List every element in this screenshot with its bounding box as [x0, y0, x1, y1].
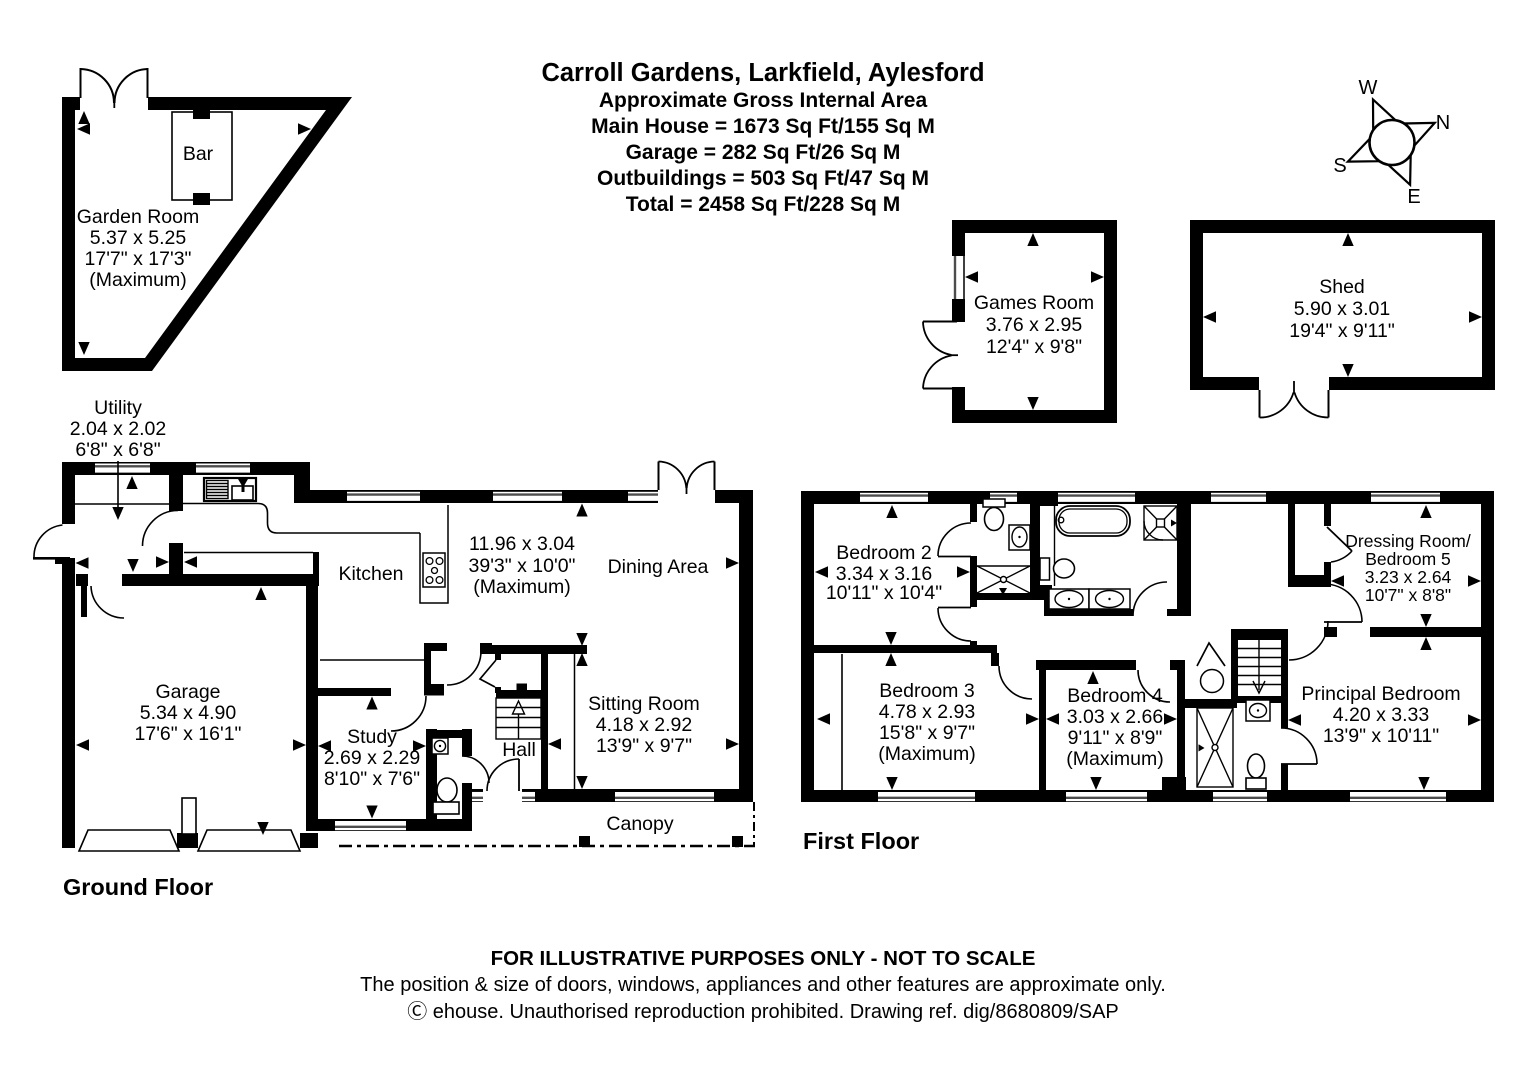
- svg-text:FOR ILLUSTRATIVE PURPOSES ONLY: FOR ILLUSTRATIVE PURPOSES ONLY - NOT TO …: [491, 947, 1036, 970]
- svg-text:W: W: [1359, 77, 1378, 99]
- svg-text:3.23 x 2.64: 3.23 x 2.64: [1365, 567, 1452, 587]
- svg-text:Garage: Garage: [155, 681, 220, 703]
- svg-text:5.37 x 5.25: 5.37 x 5.25: [90, 227, 187, 249]
- svg-text:3.03 x 2.66: 3.03 x 2.66: [1067, 706, 1164, 728]
- svg-text:Ⓒ ehouse. Unauthorised reprodu: Ⓒ ehouse. Unauthorised reproduction proh…: [407, 1000, 1119, 1023]
- svg-text:13'9" x 9'7": 13'9" x 9'7": [596, 735, 692, 757]
- svg-text:2.69 x 2.29: 2.69 x 2.29: [324, 747, 421, 769]
- svg-text:Principal Bedroom: Principal Bedroom: [1301, 683, 1460, 705]
- svg-text:19'4" x 9'11": 19'4" x 9'11": [1289, 320, 1395, 342]
- svg-text:9'11" x 8'9": 9'11" x 8'9": [1068, 727, 1163, 749]
- svg-text:S: S: [1333, 155, 1346, 177]
- svg-text:Bedroom 5: Bedroom 5: [1365, 549, 1451, 569]
- svg-text:13'9" x 10'11": 13'9" x 10'11": [1323, 725, 1439, 747]
- svg-text:4.20 x 3.33: 4.20 x 3.33: [1333, 704, 1430, 726]
- svg-text:First Floor: First Floor: [803, 828, 919, 854]
- svg-text:Bar: Bar: [183, 143, 214, 165]
- svg-text:Bedroom 3: Bedroom 3: [879, 680, 974, 702]
- svg-text:Bedroom 2: Bedroom 2: [836, 542, 931, 564]
- svg-text:(Maximum): (Maximum): [89, 269, 187, 291]
- svg-text:4.78 x 2.93: 4.78 x 2.93: [879, 701, 976, 723]
- svg-text:Outbuildings = 503 Sq Ft/47 Sq: Outbuildings = 503 Sq Ft/47 Sq M: [597, 167, 929, 190]
- svg-text:Utility: Utility: [94, 397, 142, 419]
- svg-text:2.04 x 2.02: 2.04 x 2.02: [70, 418, 167, 440]
- svg-text:Carroll Gardens, Larkfield, Ay: Carroll Gardens, Larkfield, Aylesford: [541, 59, 984, 87]
- svg-text:E: E: [1407, 186, 1420, 208]
- svg-text:Ground Floor: Ground Floor: [63, 874, 213, 900]
- svg-text:Kitchen: Kitchen: [338, 563, 403, 585]
- svg-text:Dining Area: Dining Area: [608, 556, 709, 578]
- svg-text:15'8" x 9'7": 15'8" x 9'7": [879, 722, 975, 744]
- svg-text:N: N: [1436, 112, 1450, 134]
- svg-text:Sitting Room: Sitting Room: [588, 693, 700, 715]
- svg-text:4.18 x 2.92: 4.18 x 2.92: [596, 714, 693, 736]
- svg-text:5.90 x 3.01: 5.90 x 3.01: [1294, 298, 1391, 320]
- svg-text:Total = 2458 Sq Ft/228 Sq M: Total = 2458 Sq Ft/228 Sq M: [626, 193, 900, 216]
- svg-text:5.34 x 4.90: 5.34 x 4.90: [140, 702, 237, 724]
- svg-text:11.96 x 3.04: 11.96 x 3.04: [469, 533, 575, 555]
- svg-text:Hall: Hall: [502, 739, 536, 761]
- svg-text:Approximate Gross Internal Are: Approximate Gross Internal Area: [599, 89, 928, 112]
- svg-text:(Maximum): (Maximum): [878, 743, 976, 765]
- svg-text:12'4" x 9'8": 12'4" x 9'8": [986, 336, 1082, 358]
- svg-text:8'10" x 7'6": 8'10" x 7'6": [324, 768, 420, 790]
- svg-text:39'3" x 10'0": 39'3" x 10'0": [469, 555, 576, 577]
- svg-text:Games Room: Games Room: [974, 292, 1094, 314]
- svg-text:Study: Study: [347, 726, 397, 748]
- svg-text:17'7" x 17'3": 17'7" x 17'3": [85, 248, 192, 270]
- svg-text:3.76 x 2.95: 3.76 x 2.95: [986, 314, 1083, 336]
- svg-text:Garden Room: Garden Room: [77, 206, 199, 228]
- svg-text:The position & size of doors,: The position & size of doors, windows, a…: [360, 974, 1166, 996]
- svg-text:10'7" x 8'8": 10'7" x 8'8": [1365, 585, 1451, 605]
- svg-text:10'11" x 10'4": 10'11" x 10'4": [826, 582, 942, 604]
- svg-text:(Maximum): (Maximum): [473, 576, 571, 598]
- svg-text:17'6" x 16'1": 17'6" x 16'1": [135, 723, 242, 745]
- svg-text:Garage = 282 Sq Ft/26 Sq M: Garage = 282 Sq Ft/26 Sq M: [626, 141, 901, 164]
- svg-text:Shed: Shed: [1319, 276, 1365, 298]
- svg-text:Canopy: Canopy: [606, 813, 673, 835]
- svg-text:Bedroom 4: Bedroom 4: [1067, 685, 1163, 707]
- svg-text:Main House = 1673 Sq Ft/155 Sq: Main House = 1673 Sq Ft/155 Sq M: [591, 115, 935, 138]
- svg-text:Dressing Room/: Dressing Room/: [1345, 531, 1471, 551]
- svg-text:(Maximum): (Maximum): [1066, 748, 1164, 770]
- svg-text:6'8" x 6'8": 6'8" x 6'8": [75, 439, 160, 461]
